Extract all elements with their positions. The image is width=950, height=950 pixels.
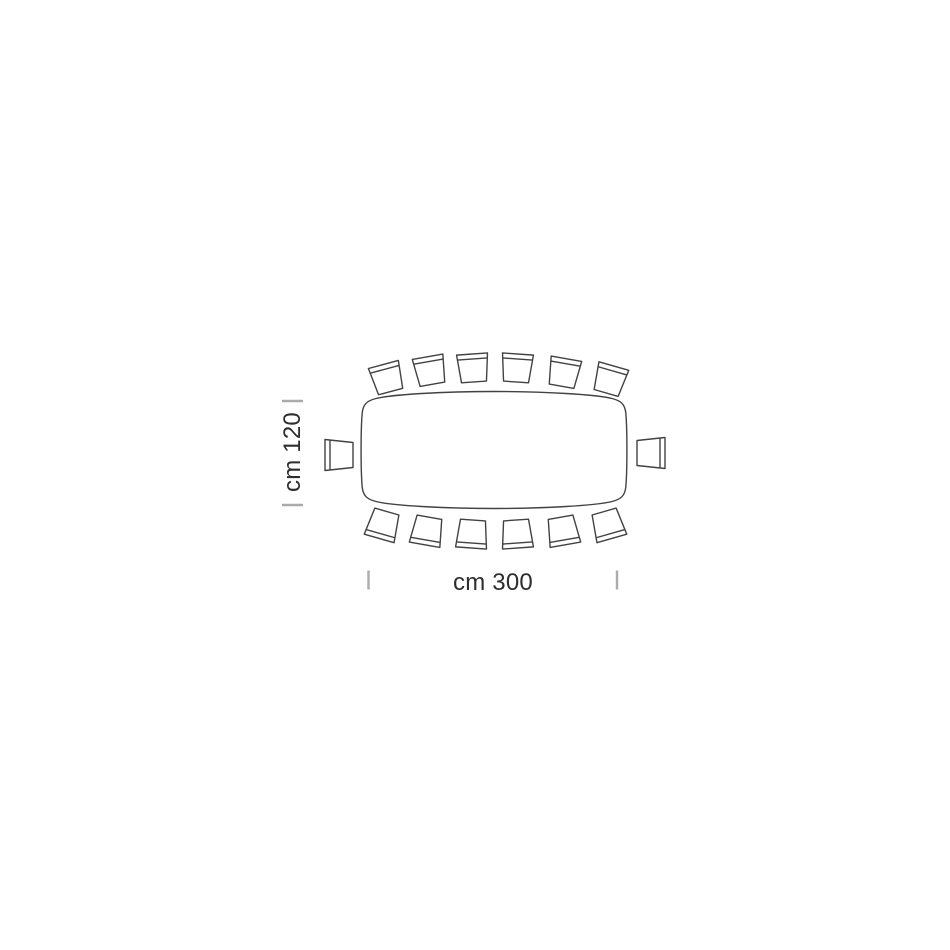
chair-top: [501, 353, 534, 383]
table-outline: [361, 392, 627, 509]
chair-bottom: [456, 519, 489, 549]
seating-diagram-svg: [0, 0, 950, 950]
chair-left: [325, 440, 353, 471]
page: cm 120 cm 300: [0, 0, 950, 950]
chair-top: [591, 362, 629, 397]
chair-seat-outline: [325, 440, 353, 471]
chair-bottom: [409, 515, 444, 548]
chair-top: [368, 360, 405, 395]
chair-seat-outline: [457, 353, 490, 383]
chair-seat-outline: [364, 507, 402, 542]
chair-top: [412, 354, 447, 387]
chair-bottom: [545, 515, 580, 548]
chair-top: [546, 356, 581, 389]
chair-seat-outline: [501, 519, 534, 549]
chair-seat-outline: [637, 438, 665, 469]
chair-seat-outline: [368, 360, 405, 395]
chair-bottom: [364, 507, 402, 542]
chair-bottom: [501, 519, 534, 549]
chair-seat-outline: [456, 519, 489, 549]
chair-top: [457, 353, 490, 383]
chair-seat-outline: [589, 507, 627, 542]
width-dimension-label: cm 300: [393, 570, 593, 596]
chair-bottom: [589, 507, 627, 542]
chair-right: [637, 438, 665, 469]
depth-dimension-label: cm 120: [280, 352, 306, 552]
chair-seat-outline: [591, 362, 629, 397]
chair-seat-outline: [501, 353, 534, 383]
